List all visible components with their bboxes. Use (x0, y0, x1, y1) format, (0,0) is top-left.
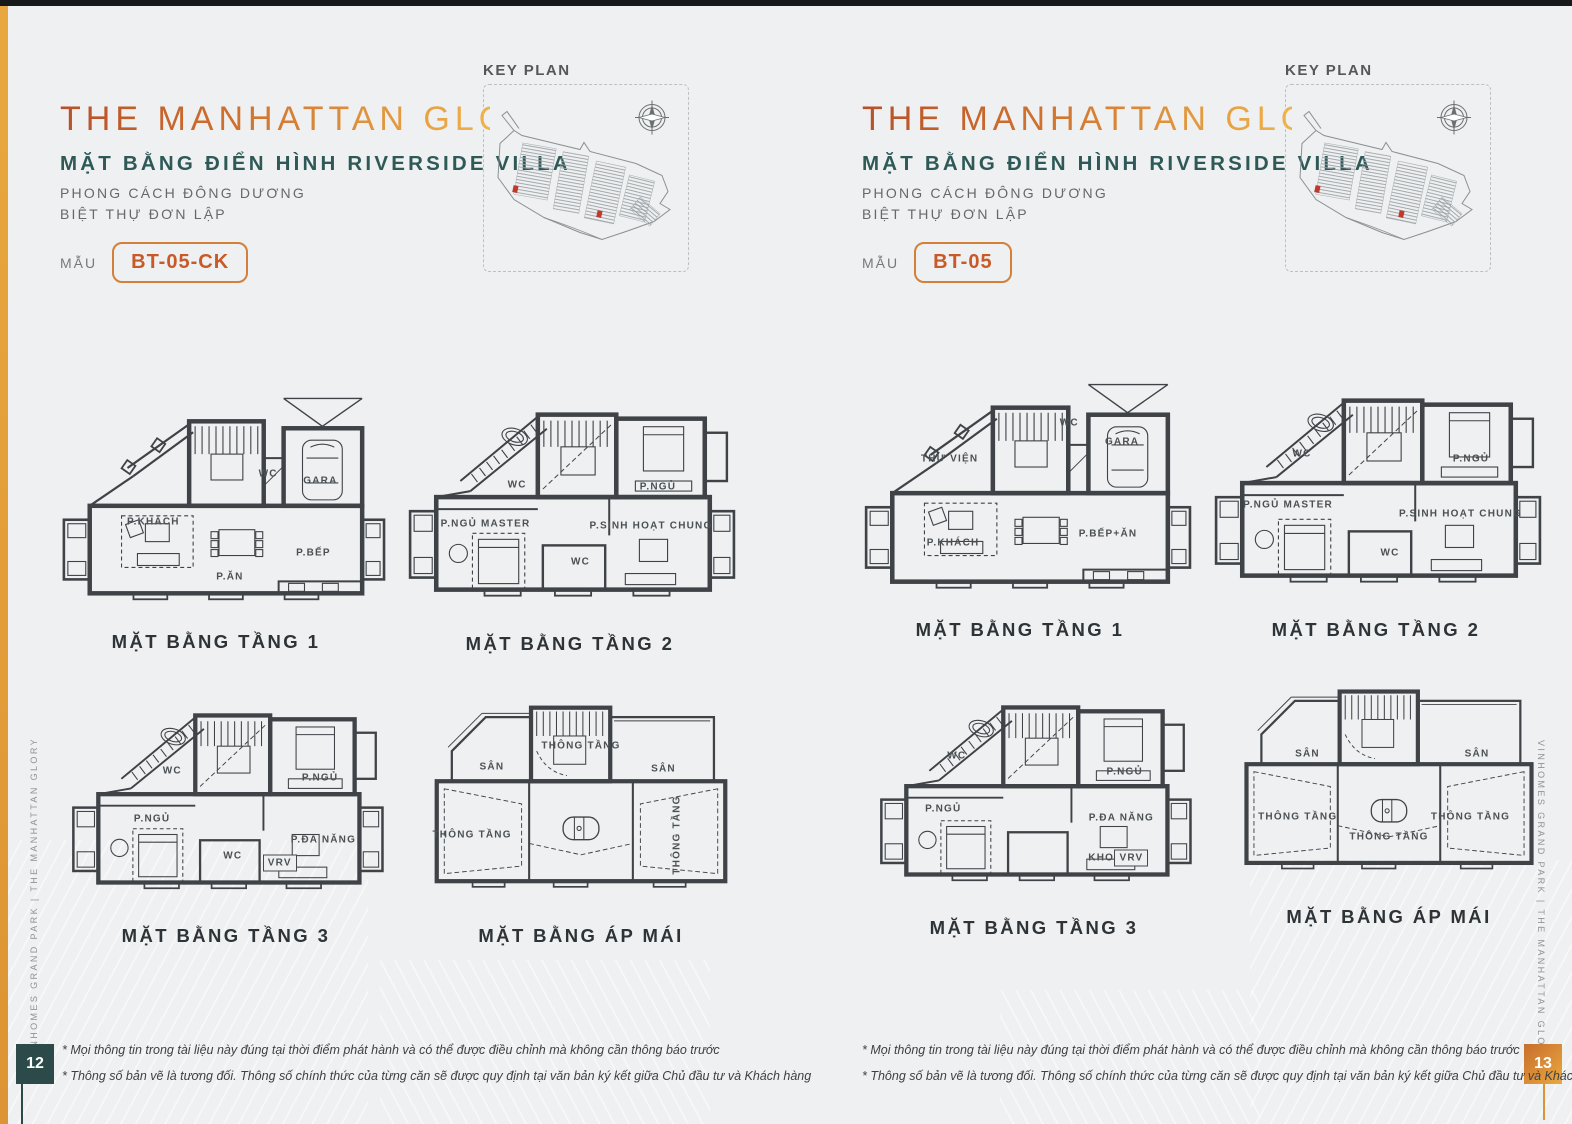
model-code-badge: BT-05 (914, 242, 1011, 283)
floor-plan-level3-right: WCP.NGỦP.NGỦP.ĐA NĂNGKHOVRV MẶT BẰNG TẦN… (866, 680, 1202, 930)
room-label: WC (259, 469, 278, 480)
room-label: GARA (1105, 436, 1139, 447)
room-label: P.BẾP (296, 548, 331, 559)
keyplan-map (1285, 84, 1491, 272)
page-subtitle: MẶT BẰNG ĐIỂN HÌNH RIVERSIDE VILLA (862, 152, 1292, 176)
site-map-with-compass-icon (484, 85, 688, 271)
plan-caption: MẶT BẰNG ÁP MÁI (416, 919, 746, 947)
keyplan-map (483, 84, 689, 272)
floor-plan-level3-left: WCP.NGỦP.NGỦWCP.ĐA NĂNGVRV MẶT BẰNG TẦNG… (58, 688, 394, 914)
room-label: WC (223, 851, 242, 862)
room-label: P.KHÁCH (127, 517, 180, 528)
room-label: P.BẾP+ĂN (1079, 528, 1138, 539)
room-label: P.NGỦ MASTER (441, 518, 531, 529)
plan-caption: MẶT BẰNG TẦNG 3 (866, 911, 1202, 939)
room-label: WC (1293, 449, 1312, 460)
room-label: SÂN (651, 764, 676, 775)
style-line: BIỆT THỰ ĐƠN LẬP (862, 206, 1292, 222)
plan-caption: MẶT BẰNG ÁP MÁI (1226, 900, 1552, 930)
page-number-line (1543, 1084, 1545, 1120)
footnote-line: * Mọi thông tin trong tài liệu này đúng … (862, 1037, 1572, 1063)
room-label: WC (1381, 547, 1400, 558)
footnote-line: * Thông số bản vẽ là tương đối. Thông số… (62, 1063, 811, 1089)
room-label: THÔNG TẦNG (432, 829, 511, 840)
room-label: SÂN (1295, 749, 1320, 760)
site-map-with-compass-icon (1286, 85, 1490, 271)
floor-plan-roof-left: SÂNTHÔNG TẦNGSÂNTHÔNG TẦNGTHÔNG TẦNG MẶT… (416, 692, 746, 914)
top-border-bar (0, 0, 1572, 6)
room-label: P.NGỦ (1107, 767, 1143, 778)
floor-plan-roof-right: SÂNSÂNTHÔNG TẦNGTHÔNG TẦNGTHÔNG TẦNG MẶT… (1226, 676, 1552, 930)
floor-plan-level2-left: WCP.NGỦP.NGỦ MASTERP.SINH HOẠT CHUNGWC M… (394, 386, 746, 628)
room-label: KHO (1088, 852, 1114, 863)
left-page-header: THE MANHATTAN GLORY MẶT BẰNG ĐIỂN HÌNH R… (60, 100, 490, 283)
room-label: WC (163, 766, 182, 777)
room-label: P.ĂN (216, 571, 243, 582)
room-label: P.SINH HOẠT CHUNG (1399, 509, 1522, 520)
room-label: P.NGỦ MASTER (1243, 499, 1333, 510)
plan-caption: MẶT BẰNG TẦNG 1 (42, 625, 390, 653)
plan-caption: MẶT BẰNG TẦNG 2 (394, 627, 746, 655)
plan-caption: MẶT BẰNG TẦNG 3 (58, 919, 394, 947)
room-label: P.NGỦ (925, 804, 961, 815)
floor-plan-level1-left: P.KHÁCHP.ĂNWCGARAP.BẾP MẶT BẰNG TẦNG 1 (42, 386, 390, 628)
model-label: MẪU (862, 255, 899, 271)
side-vertical-text-left: VINHOMES GRAND PARK | THE MANHATTAN GLOR… (29, 737, 39, 1061)
footnote-line: * Thông số bản vẽ là tương đối. Thông số… (862, 1063, 1572, 1089)
room-label: THÔNG TẦNG (1431, 812, 1510, 823)
footnote-line: * Mọi thông tin trong tài liệu này đúng … (62, 1037, 811, 1063)
page-number-line (21, 1084, 23, 1124)
page-subtitle: MẶT BẰNG ĐIỂN HÌNH RIVERSIDE VILLA (60, 152, 490, 176)
room-label: VRV (1114, 849, 1148, 866)
room-label: THÔNG TẦNG (1258, 812, 1337, 823)
footnotes-right: * Mọi thông tin trong tài liệu này đúng … (862, 1037, 1572, 1089)
style-line: PHONG CÁCH ĐÔNG DƯƠNG (60, 185, 490, 201)
room-label: P.NGỦ (302, 772, 338, 783)
room-label: P.NGỦ (1453, 453, 1489, 464)
room-label: P.ĐA NĂNG (291, 835, 356, 846)
room-label: VRV (263, 855, 297, 872)
side-vertical-text-right: VINHOMES GRAND PARK | THE MANHATTAN GLOR… (1536, 740, 1546, 1064)
room-label: WC (947, 751, 966, 762)
room-label: WC (1060, 417, 1079, 428)
room-label: WC (571, 557, 590, 568)
room-label: P.SINH HOẠT CHUNG (589, 520, 712, 531)
room-label: SÂN (480, 761, 505, 772)
page-title: THE MANHATTAN GLORY (60, 100, 490, 139)
plan-caption: MẶT BẰNG TẦNG 1 (844, 613, 1196, 641)
style-line: BIỆT THỰ ĐƠN LẬP (60, 206, 490, 222)
keyplan-title: KEY PLAN (483, 62, 571, 79)
page-title: THE MANHATTAN GLORY (862, 100, 1292, 139)
room-label: P.NGỦ (640, 482, 676, 493)
room-label: WC (508, 479, 527, 490)
right-page-header: THE MANHATTAN GLORY MẶT BẰNG ĐIỂN HÌNH R… (862, 100, 1292, 283)
plan-caption: MẶT BẰNG TẦNG 2 (1200, 613, 1552, 641)
style-line: PHONG CÁCH ĐÔNG DƯƠNG (862, 185, 1292, 201)
room-label: THƯ VIỆN (921, 453, 978, 464)
room-label: THÔNG TẦNG (671, 795, 682, 874)
brochure-spread: THE MANHATTAN GLORY MẶT BẰNG ĐIỂN HÌNH R… (0, 0, 1572, 1124)
room-label: SÂN (1465, 749, 1490, 760)
footnotes-left: * Mọi thông tin trong tài liệu này đúng … (62, 1037, 811, 1089)
model-code-badge: BT-05-CK (112, 242, 248, 283)
floor-plan-level2-right: WCP.NGỦP.NGỦ MASTERP.SINH HOẠT CHUNGWC M… (1200, 372, 1552, 634)
room-label: P.NGỦ (134, 814, 170, 825)
floor-plan-level1-right: THƯ VIỆNWCGARAP.KHÁCHP.BẾP+ĂN MẶT BẰNG T… (844, 372, 1196, 634)
room-label: P.ĐA NĂNG (1089, 813, 1154, 824)
room-label: THÔNG TẦNG (1349, 832, 1428, 843)
room-label: GARA (303, 476, 337, 487)
left-accent-bar (0, 6, 8, 1124)
page-number-left: 12 (16, 1044, 54, 1084)
room-label: THÔNG TẦNG (541, 741, 620, 752)
room-label: P.KHÁCH (927, 538, 980, 549)
model-label: MẪU (60, 255, 97, 271)
keyplan-title: KEY PLAN (1285, 62, 1373, 79)
